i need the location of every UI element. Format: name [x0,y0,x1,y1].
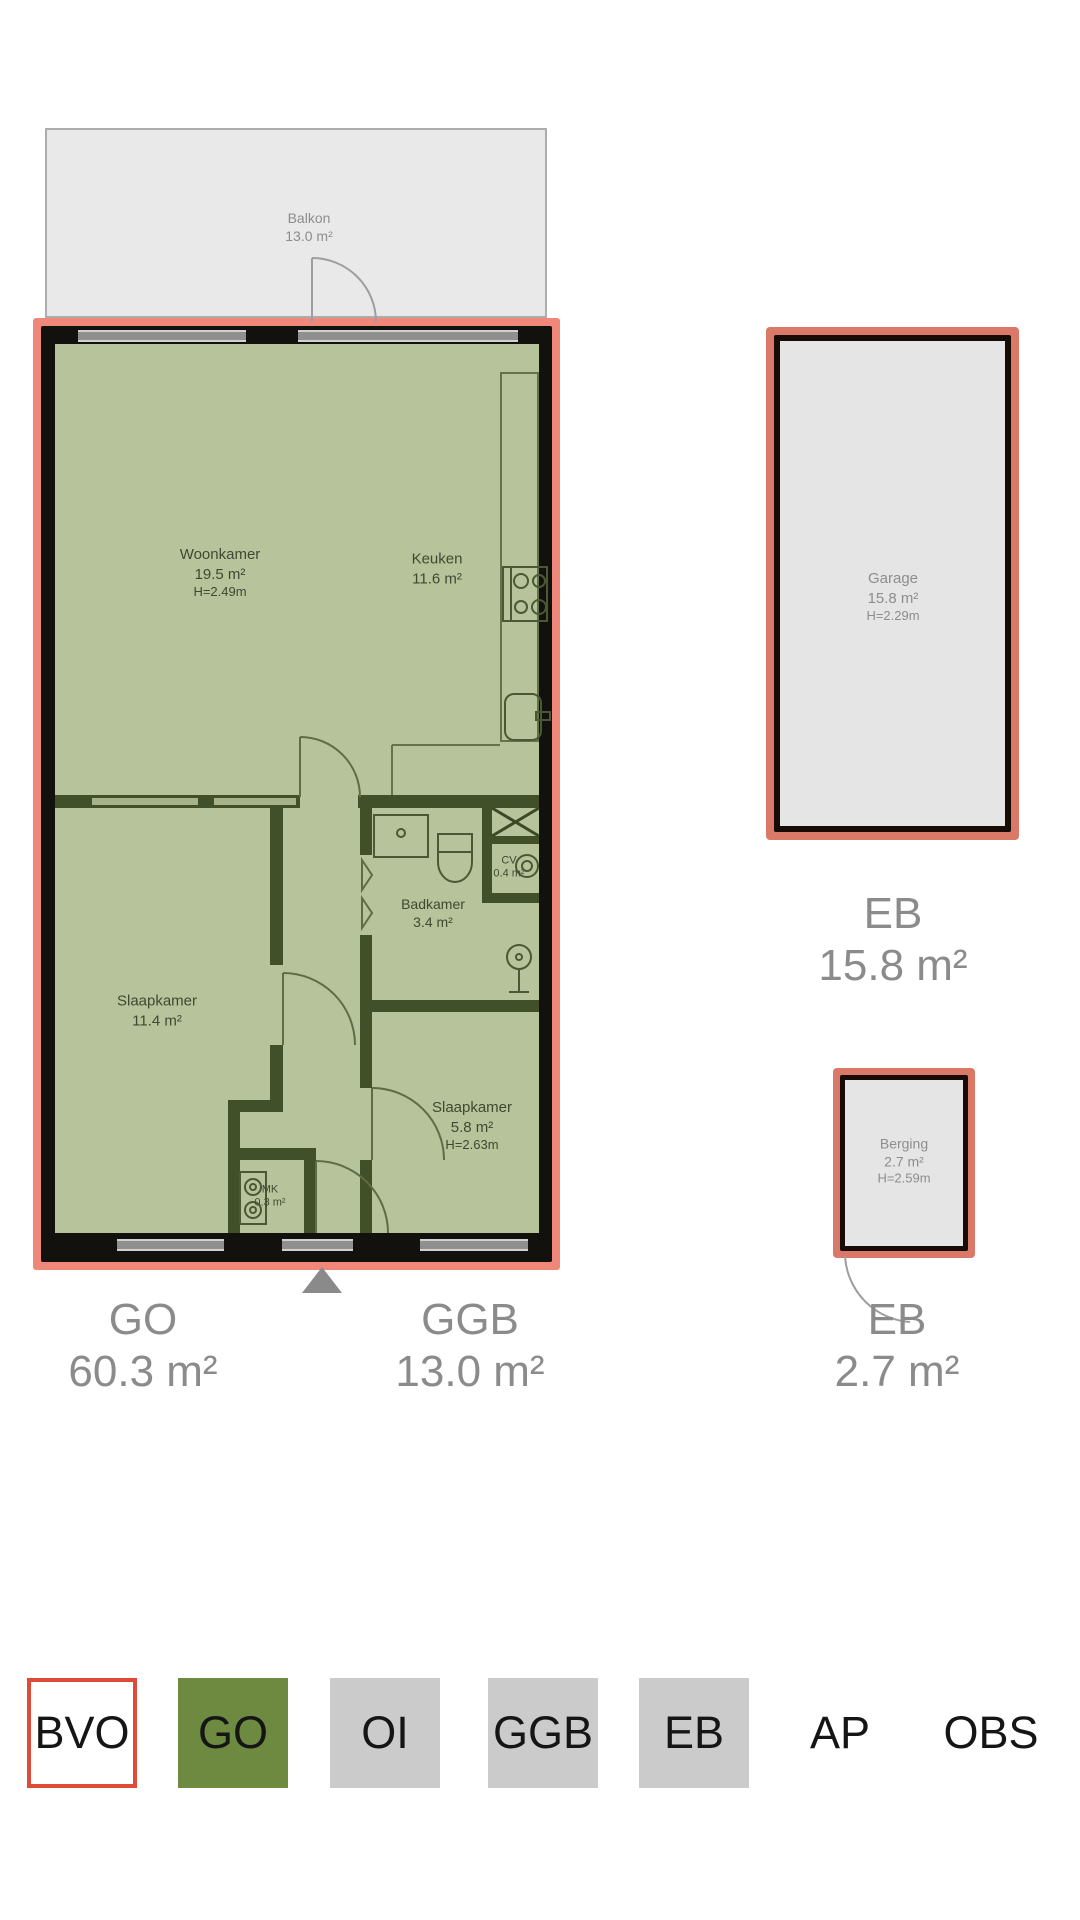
interior-wall [304,1160,316,1233]
north-arrow-icon [302,1267,342,1293]
room-divider [92,798,198,805]
label-eb-berging: EB 2.7 m² [835,1294,960,1398]
window [282,1239,353,1251]
room-label-mk: MK 0.3 m² [254,1183,285,1208]
room-label-slaapkamer-2: Slaapkamer 5.8 m² H=2.63m [432,1098,512,1154]
room-label-slaapkamer-1: Slaapkamer 11.4 m² [117,992,197,1031]
window [117,1239,224,1251]
interior-wall [482,893,539,903]
legend-item-ggb[interactable]: GGB [488,1678,598,1788]
interior-wall [228,1100,283,1112]
interior-wall [482,836,539,844]
legend-item-bvo[interactable]: BVO [27,1678,137,1788]
interior-wall [360,1000,539,1012]
room-label-cv: CV 0.4 m² [493,854,524,879]
interior-wall [358,795,539,808]
room-label-woonkamer: Woonkamer 19.5 m² H=2.49m [180,545,261,601]
label-eb-garage: EB 15.8 m² [818,888,967,992]
room-label-garage: Garage 15.8 m² H=2.29m [866,569,919,625]
room-divider [214,798,296,805]
window [78,330,246,342]
interior-wall [240,1148,316,1160]
label-go: GO 60.3 m² [68,1294,217,1398]
kitchen-counter [500,372,539,742]
room-label-badkamer: Badkamer 3.4 m² [401,895,465,931]
legend-item-go[interactable]: GO [178,1678,288,1788]
room-label-keuken: Keuken 11.6 m² [412,550,463,589]
window [298,330,518,342]
window [420,1239,528,1251]
interior-wall [482,808,492,900]
label-ggb: GGB 13.0 m² [395,1294,544,1398]
room-label-berging: Berging 2.7 m² H=2.59m [877,1134,930,1187]
legend-item-ap[interactable]: AP [785,1678,895,1788]
interior-wall [360,808,372,855]
legend-item-oi[interactable]: OI [330,1678,440,1788]
legend-item-obs[interactable]: OBS [931,1678,1051,1788]
interior-wall [270,808,283,965]
interior-wall [270,1045,283,1108]
interior-wall [228,1112,240,1233]
room-label-balkon: Balkon 13.0 m² [285,209,332,245]
interior-wall [360,1160,372,1233]
legend-item-eb[interactable]: EB [639,1678,749,1788]
